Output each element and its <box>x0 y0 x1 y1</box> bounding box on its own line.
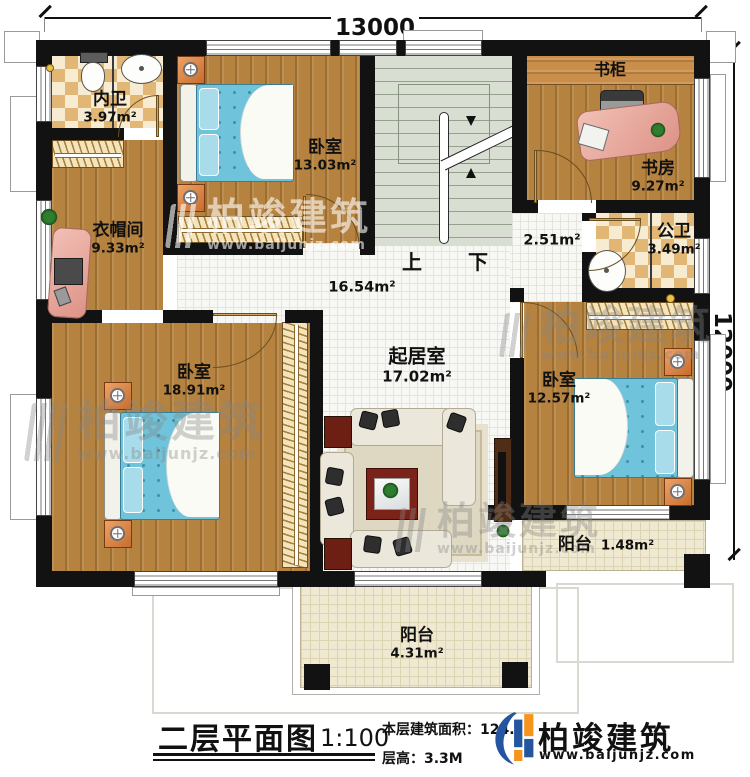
sliding-door-living <box>354 571 482 587</box>
faucet-knob <box>46 64 54 72</box>
wardrobe-bedroom-right <box>586 302 694 330</box>
plant-icon <box>650 122 666 138</box>
window <box>206 40 331 56</box>
wall <box>163 310 213 323</box>
door-leaf <box>213 313 277 316</box>
window <box>694 78 710 178</box>
floor-height-text: 层高：3.3M <box>382 748 463 768</box>
door-leaf <box>156 95 159 137</box>
lamp-icon <box>110 388 125 403</box>
wall <box>510 358 524 520</box>
bed-blanket <box>166 413 219 517</box>
plan-title: 二层平面图 <box>158 714 318 758</box>
column <box>502 662 528 688</box>
roof-outline <box>556 583 734 663</box>
floor-plan-canvas: 13000 12000 <box>0 0 750 777</box>
wall <box>52 128 124 140</box>
bed-pillow <box>655 430 675 474</box>
extension-line <box>701 17 702 32</box>
dimension-tick <box>38 5 51 18</box>
window-sill <box>706 31 736 63</box>
plant-icon <box>40 208 58 226</box>
label-stairs-up: 上 <box>402 251 422 273</box>
bed-pillow <box>123 417 143 463</box>
plant-icon <box>496 524 510 538</box>
toilet-bowl <box>81 62 105 92</box>
window-sill <box>4 31 40 63</box>
label-living-room: 起居室 17.02m² <box>382 347 452 386</box>
side-table <box>324 416 352 448</box>
label-stairs-down: 下 <box>468 251 488 273</box>
label-bookcase: 书柜 <box>594 61 626 79</box>
label-hallway-area: 2.51m² <box>523 232 580 249</box>
lamp-icon <box>183 62 198 77</box>
door-leaf <box>303 196 306 248</box>
bed-blanket <box>240 85 293 179</box>
label-corridor-area: 16.54m² <box>328 279 395 296</box>
label-balcony-right: 阳台 1.48m² <box>558 536 654 555</box>
bed-pillow <box>199 134 219 176</box>
plant-icon <box>382 482 399 499</box>
bed-headboard <box>676 378 694 478</box>
computer-monitor-icon <box>54 258 83 285</box>
window-sill <box>132 587 280 596</box>
label-bedroom-left: 卧室 18.91m² <box>163 364 226 399</box>
stair-direction-arrow <box>466 116 476 126</box>
bed-pillow <box>655 382 675 426</box>
window-sill <box>710 334 726 484</box>
lamp-icon <box>183 190 198 205</box>
label-bedroom-right: 卧室 12.57m² <box>528 372 591 407</box>
brand-url: www.baijunjz.com <box>539 748 696 763</box>
window-sill <box>10 96 38 192</box>
dimension-line-right <box>733 48 735 560</box>
label-balcony-bottom: 阳台 4.31m² <box>390 627 443 662</box>
column <box>684 554 710 588</box>
wall <box>360 40 375 255</box>
title-underline <box>153 759 375 761</box>
sofa-cushion <box>363 535 382 554</box>
wall <box>163 40 177 243</box>
label-public-bath: 公卫 3.49m² <box>647 223 700 258</box>
bed-pillow <box>199 88 219 130</box>
door-leaf <box>534 150 537 203</box>
wall <box>512 40 527 213</box>
plan-scale: 1:100 <box>320 724 389 752</box>
window <box>36 398 52 516</box>
lamp-icon <box>110 526 125 541</box>
door-leaf <box>520 302 523 358</box>
sofa-cushion <box>325 467 345 487</box>
window <box>339 40 397 56</box>
wall <box>510 288 524 302</box>
wardrobe-bedroom-left <box>282 322 308 568</box>
label-ensuite-bath: 内卫 3.97m² <box>83 91 136 126</box>
label-study: 书房 9.27m² <box>631 160 684 195</box>
column <box>304 664 330 690</box>
wardrobe-bedroom-top <box>178 216 303 243</box>
label-cloakroom: 衣帽间 9.33m² <box>91 222 144 257</box>
wall <box>596 200 710 213</box>
lamp-icon <box>670 354 685 369</box>
sliding-door-bedroom-right <box>566 505 670 520</box>
tv-icon <box>498 452 506 504</box>
sink-drain <box>604 268 609 273</box>
window <box>36 66 52 122</box>
label-bedroom-top: 卧室 13.03m² <box>294 139 357 174</box>
bed-pillow <box>123 467 143 513</box>
window-sill <box>10 394 38 520</box>
window <box>694 340 710 480</box>
window-sill <box>710 74 726 182</box>
door-leaf <box>589 218 641 221</box>
extension-line <box>44 17 45 32</box>
title-underline <box>153 753 375 756</box>
sink-drain <box>139 66 144 71</box>
side-table <box>324 538 352 570</box>
wardrobe-cloakroom <box>52 140 124 168</box>
faucet-knob <box>666 294 675 303</box>
stair-handrail <box>439 112 449 244</box>
brand-logo-icon <box>492 708 538 772</box>
sofa-cushion <box>381 409 401 429</box>
window <box>134 571 278 587</box>
window <box>405 40 482 56</box>
stair-direction-arrow <box>466 168 476 178</box>
dimension-tick <box>694 5 707 18</box>
lamp-icon <box>670 484 685 499</box>
wall <box>163 243 303 255</box>
